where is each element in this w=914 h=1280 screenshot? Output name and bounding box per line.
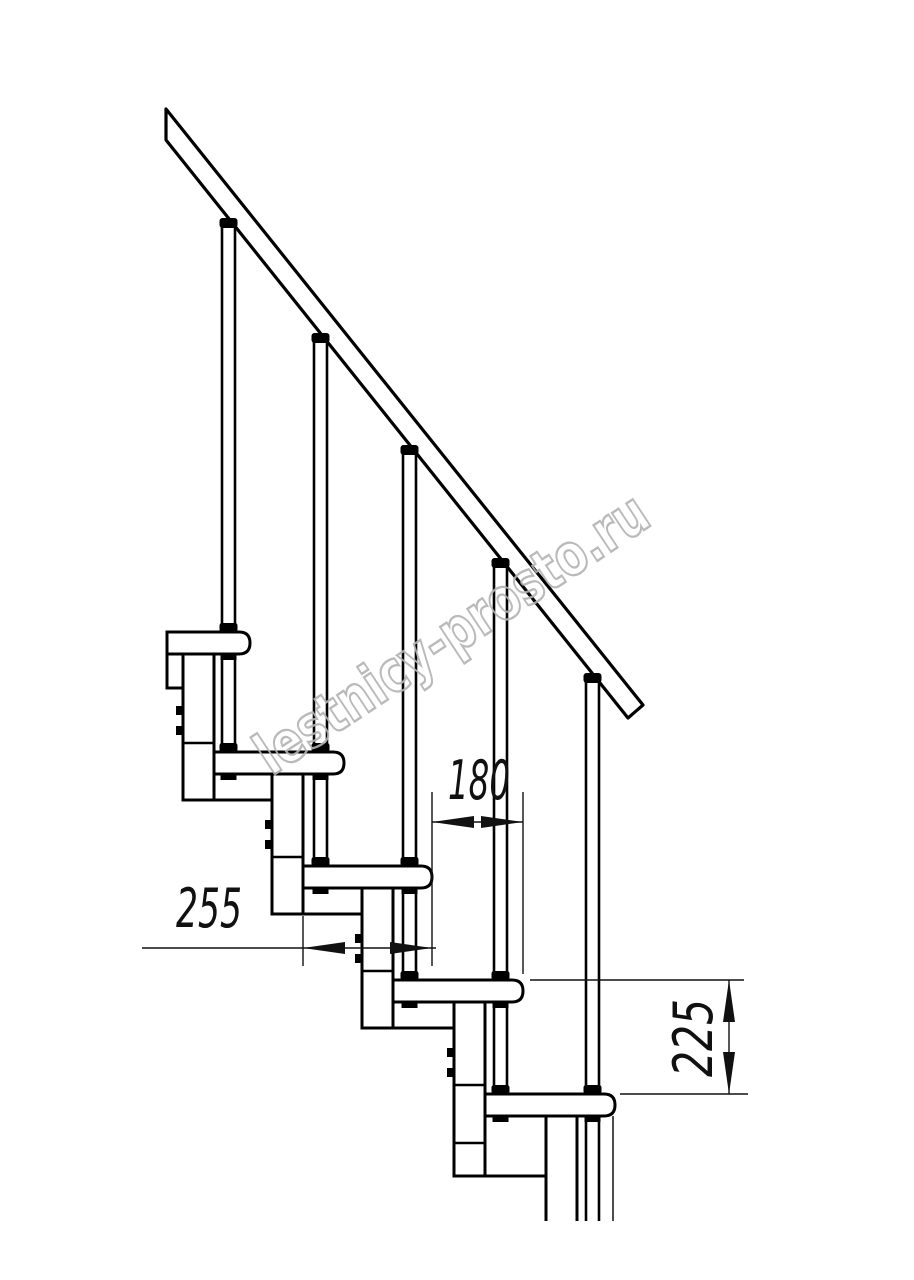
fastener-nut: [493, 1116, 509, 1122]
fastener-cap: [492, 1085, 510, 1094]
fastener-nut: [221, 774, 237, 780]
fastener-cap: [220, 623, 238, 632]
dimension-annotations: [142, 792, 748, 1094]
fastener-nut: [313, 888, 329, 894]
support-column: [183, 654, 214, 800]
support-column: [362, 888, 393, 1028]
bolt: [176, 706, 183, 715]
tread: [167, 632, 250, 654]
fastener-nut: [493, 1002, 509, 1008]
dim-label-tread-depth: 255: [176, 877, 242, 940]
bolt: [447, 1048, 454, 1057]
bolt: [355, 934, 362, 943]
bolt: [265, 820, 272, 829]
fastener-cap: [584, 1085, 602, 1094]
support-column: [454, 1002, 485, 1176]
tread: [303, 866, 432, 888]
fastener-nut: [402, 1002, 418, 1008]
dim-label-step-rise: 225: [662, 999, 725, 1077]
support-column: [272, 774, 303, 914]
tread: [485, 1094, 615, 1116]
dim-label-step-run: 180: [448, 749, 510, 812]
bolt: [176, 726, 183, 735]
fastener-cap: [401, 971, 419, 980]
fastener-nut: [402, 888, 418, 894]
rail-cap: [584, 673, 602, 683]
fastener-nut: [585, 1116, 601, 1122]
rail-cap: [220, 218, 238, 228]
fastener-nut: [313, 774, 329, 780]
bolt: [265, 840, 272, 849]
dimension-arrow: [432, 816, 474, 828]
bolt: [355, 954, 362, 963]
dimension-arrow: [390, 942, 432, 954]
fastener-cap: [401, 857, 419, 866]
fastener-cap: [220, 743, 238, 752]
drawing-page: 255 180 225 lestnicy-prosto.ru: [0, 0, 914, 1280]
tread: [393, 980, 523, 1002]
bolt: [447, 1068, 454, 1077]
rail-cap: [401, 445, 419, 455]
dimension-arrow: [481, 816, 523, 828]
rail-cap: [312, 333, 330, 343]
fastener-nut: [221, 654, 237, 660]
fastener-cap: [492, 971, 510, 980]
upper-bracket-stub: [167, 654, 183, 688]
fastener-cap: [312, 857, 330, 866]
dimension-arrow: [303, 942, 345, 954]
stair-technical-drawing: 255 180 225 lestnicy-prosto.ru: [0, 0, 914, 1280]
